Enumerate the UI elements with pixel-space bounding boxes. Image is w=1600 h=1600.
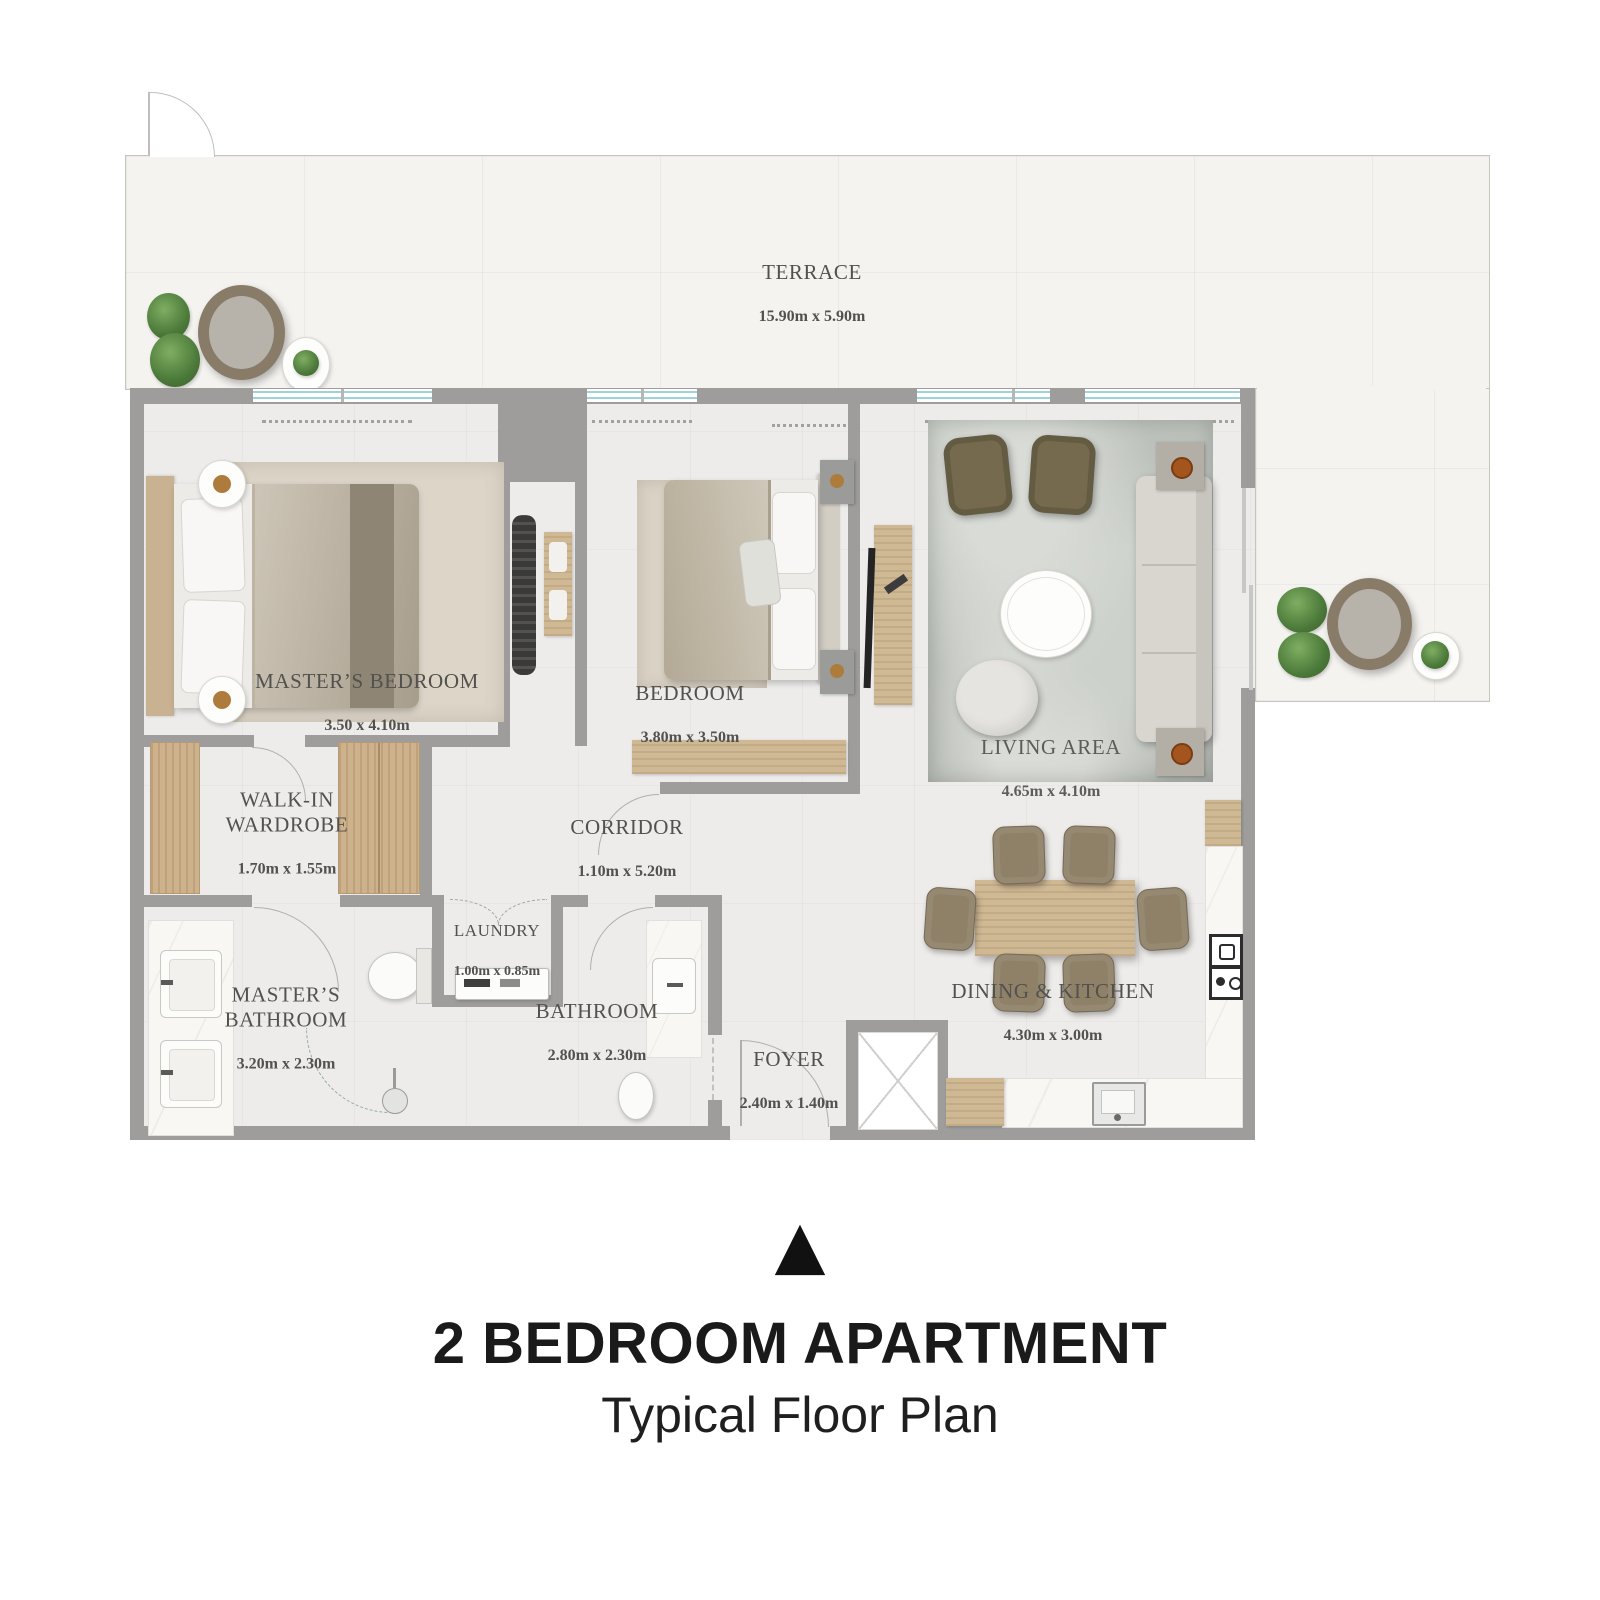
room-name: BATHROOM xyxy=(536,999,659,1025)
curtain-mark xyxy=(262,420,412,423)
faucet-icon xyxy=(161,1070,173,1075)
faucet-icon xyxy=(1114,1114,1121,1121)
corridor-runner-rug xyxy=(512,515,536,675)
nightstand xyxy=(820,650,854,694)
curtain-mark xyxy=(772,424,852,427)
room-name: CORRIDOR xyxy=(570,815,683,841)
bathroom-door-dash xyxy=(712,1038,714,1100)
room-name: MASTER’S BATHROOM xyxy=(186,982,386,1033)
pillow xyxy=(180,497,245,593)
master-bed-headboard xyxy=(146,476,174,716)
room-name: TERRACE xyxy=(759,260,866,286)
room-label-bathroom: BATHROOM 2.80m x 2.30m xyxy=(536,979,659,1085)
kitchen-cabinet xyxy=(1205,800,1241,846)
balcony-sliding-door xyxy=(1242,488,1246,593)
terrace-lounge-chair xyxy=(1327,578,1412,670)
wall-bathroom-right xyxy=(708,895,722,1035)
elevator-shaft xyxy=(858,1032,938,1130)
coffee-table xyxy=(1000,570,1092,658)
room-dims: 2.40m x 1.40m xyxy=(740,1094,839,1114)
wardrobe-closet xyxy=(150,742,200,894)
terrace-door-opening xyxy=(150,154,214,157)
sofa xyxy=(1136,476,1212,742)
kitchen-cabinet xyxy=(946,1078,1004,1126)
shower-stem xyxy=(393,1068,396,1088)
room-name: DINING & KITCHEN xyxy=(951,979,1154,1005)
curtain-mark xyxy=(592,420,692,423)
wall-laundry-left xyxy=(432,895,444,1007)
room-name: WALK-IN WARDROBE xyxy=(207,787,367,838)
wall-right xyxy=(1241,688,1255,1140)
room-name: LIVING AREA xyxy=(981,735,1121,761)
balcony-sliding-door xyxy=(1249,585,1253,690)
terrace-seam xyxy=(1257,386,1486,390)
wall-wardrobe-right xyxy=(420,747,432,895)
page-subtitle: Typical Floor Plan xyxy=(0,1386,1600,1444)
sofa-cushion-line xyxy=(1142,652,1196,654)
plant-icon xyxy=(1278,632,1330,678)
room-name: MASTER’S BEDROOM xyxy=(255,669,479,695)
burner-icon xyxy=(1229,977,1242,990)
stove-hob-icon xyxy=(1209,934,1243,968)
page-title: 2 BEDROOM APARTMENT xyxy=(0,1310,1600,1377)
faucet-icon xyxy=(161,980,173,985)
armchair xyxy=(942,433,1014,517)
nightstand-lamp xyxy=(198,460,246,508)
room-dims: 15.90m x 5.90m xyxy=(759,307,866,327)
wall-bedroom-bottom xyxy=(660,782,860,794)
dining-chair xyxy=(923,886,977,951)
wall-right xyxy=(1241,388,1255,488)
dining-table xyxy=(975,880,1135,956)
burner-icon xyxy=(1219,944,1235,960)
room-label-living-area: LIVING AREA 4.65m x 4.10m xyxy=(981,715,1121,821)
room-label-laundry: LAUNDRY 1.00m x 0.85m xyxy=(454,901,540,999)
burner-icon xyxy=(1216,977,1225,986)
dining-chair xyxy=(1062,825,1116,885)
wall-corridor-right xyxy=(575,404,587,746)
lamp-icon xyxy=(213,475,231,493)
pillow xyxy=(772,492,816,574)
lamp-icon xyxy=(213,691,231,709)
floor-plan-page: TERRACE 15.90m x 5.90m MASTER’S BEDROOM … xyxy=(0,0,1600,1600)
plant-icon xyxy=(1421,641,1449,669)
stove-hob-icon xyxy=(1209,966,1243,1000)
room-dims: 4.30m x 3.00m xyxy=(951,1026,1154,1046)
terrace-door-swing-icon xyxy=(150,92,215,157)
room-label-terrace: TERRACE 15.90m x 5.90m xyxy=(759,240,866,346)
lamp-icon xyxy=(1171,457,1193,479)
room-dims: 1.00m x 0.85m xyxy=(454,963,540,980)
room-label-walk-in-wardrobe: WALK-IN WARDROBE 1.70m x 1.55m xyxy=(207,767,367,898)
tv-console xyxy=(874,525,912,705)
dining-chair xyxy=(992,825,1046,885)
room-dims: 1.10m x 5.20m xyxy=(570,862,683,882)
kitchen-sink xyxy=(1092,1082,1146,1126)
room-label-corridor: CORRIDOR 1.10m x 5.20m xyxy=(570,795,683,901)
nightstand xyxy=(820,460,854,504)
lamp-icon xyxy=(1171,743,1193,765)
room-name: FOYER xyxy=(740,1047,839,1073)
room-label-masters-bathroom: MASTER’S BATHROOM 3.20m x 2.30m xyxy=(186,962,386,1093)
plant-icon xyxy=(293,350,319,376)
room-dims: 4.65m x 4.10m xyxy=(981,782,1121,802)
sofa-back xyxy=(1196,476,1212,742)
corridor-bench xyxy=(544,532,572,636)
wall-left xyxy=(130,388,144,1140)
armchair xyxy=(1027,434,1096,516)
room-label-foyer: FOYER 2.40m x 1.40m xyxy=(740,1027,839,1133)
terrace-side-table xyxy=(1412,632,1460,680)
faucet-icon xyxy=(667,983,683,987)
window-mullion xyxy=(341,389,344,402)
wall-pillar xyxy=(498,404,587,482)
window-mullion xyxy=(1012,389,1015,402)
room-dims: 1.70m x 1.55m xyxy=(207,860,367,880)
plant-icon xyxy=(1277,587,1327,633)
lamp-icon xyxy=(830,474,844,488)
terrace-lounge-chair xyxy=(198,285,285,380)
sink-basin xyxy=(1101,1090,1135,1114)
wall-bathroom-right xyxy=(708,1100,722,1126)
room-dims: 3.20m x 2.30m xyxy=(186,1055,386,1075)
side-table xyxy=(1156,728,1204,776)
lamp-icon xyxy=(830,664,844,678)
table-ring xyxy=(1007,577,1085,651)
nightstand-lamp xyxy=(198,676,246,724)
room-label-masters-bedroom: MASTER’S BEDROOM 3.50 x 4.10m xyxy=(255,649,479,755)
closet-divider xyxy=(378,743,380,893)
sink xyxy=(652,958,696,1014)
room-name: BEDROOM xyxy=(635,681,744,707)
window-mullion xyxy=(641,389,644,402)
side-table xyxy=(1156,442,1204,490)
window xyxy=(1085,389,1240,402)
room-dims: 2.80m x 2.30m xyxy=(536,1046,659,1066)
bench-cushion xyxy=(549,542,567,572)
plant-icon xyxy=(150,333,200,387)
room-dims: 3.50 x 4.10m xyxy=(255,716,479,736)
room-name: LAUNDRY xyxy=(454,920,540,941)
room-dims: 3.80m x 3.50m xyxy=(635,728,744,748)
room-label-dining-kitchen: DINING & KITCHEN 4.30m x 3.00m xyxy=(951,959,1154,1065)
toilet-tank xyxy=(416,948,432,1004)
window xyxy=(917,389,1050,402)
dining-chair xyxy=(1136,886,1190,951)
bench-cushion xyxy=(549,590,567,620)
terrace-side-table xyxy=(282,337,330,392)
room-label-bedroom: BEDROOM 3.80m x 3.50m xyxy=(635,661,744,767)
north-arrow-icon: ▲ xyxy=(0,1212,1600,1278)
sofa-cushion-line xyxy=(1142,564,1196,566)
